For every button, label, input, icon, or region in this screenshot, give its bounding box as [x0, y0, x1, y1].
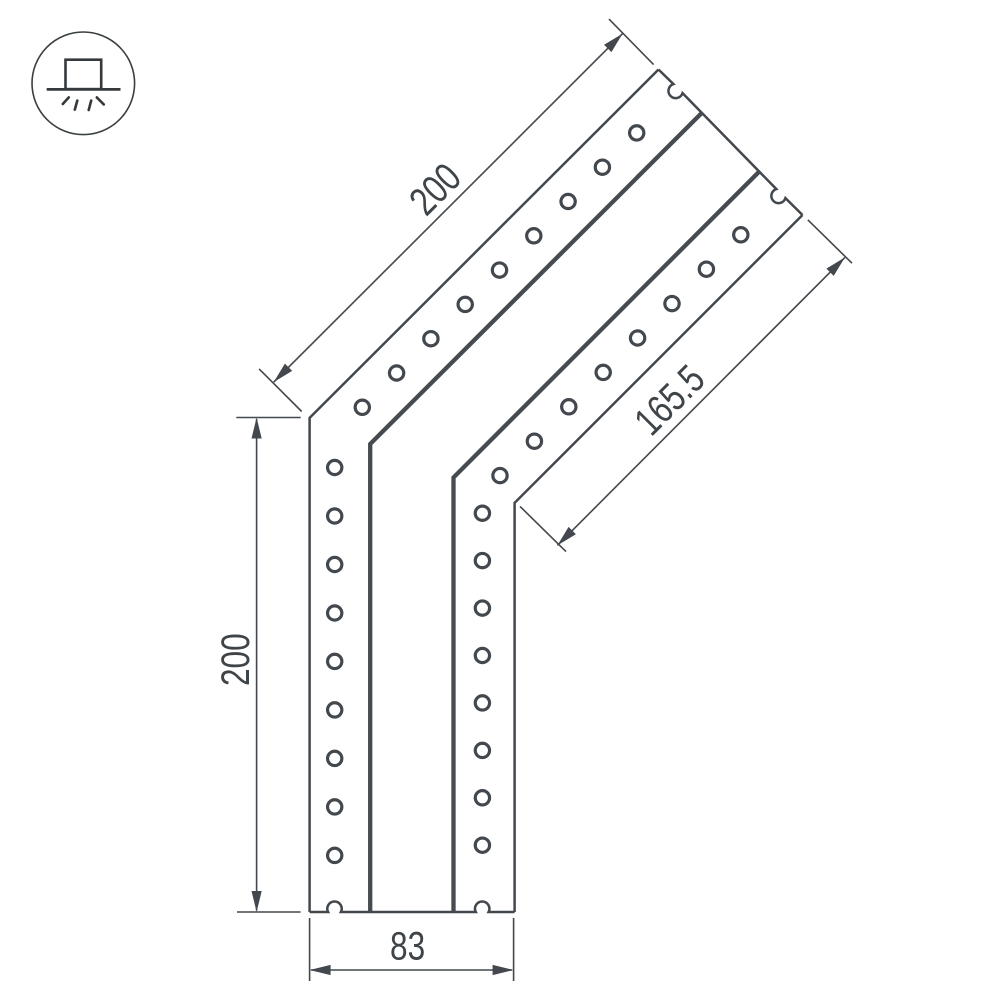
svg-text:200: 200	[212, 633, 257, 686]
svg-text:83: 83	[390, 923, 425, 968]
